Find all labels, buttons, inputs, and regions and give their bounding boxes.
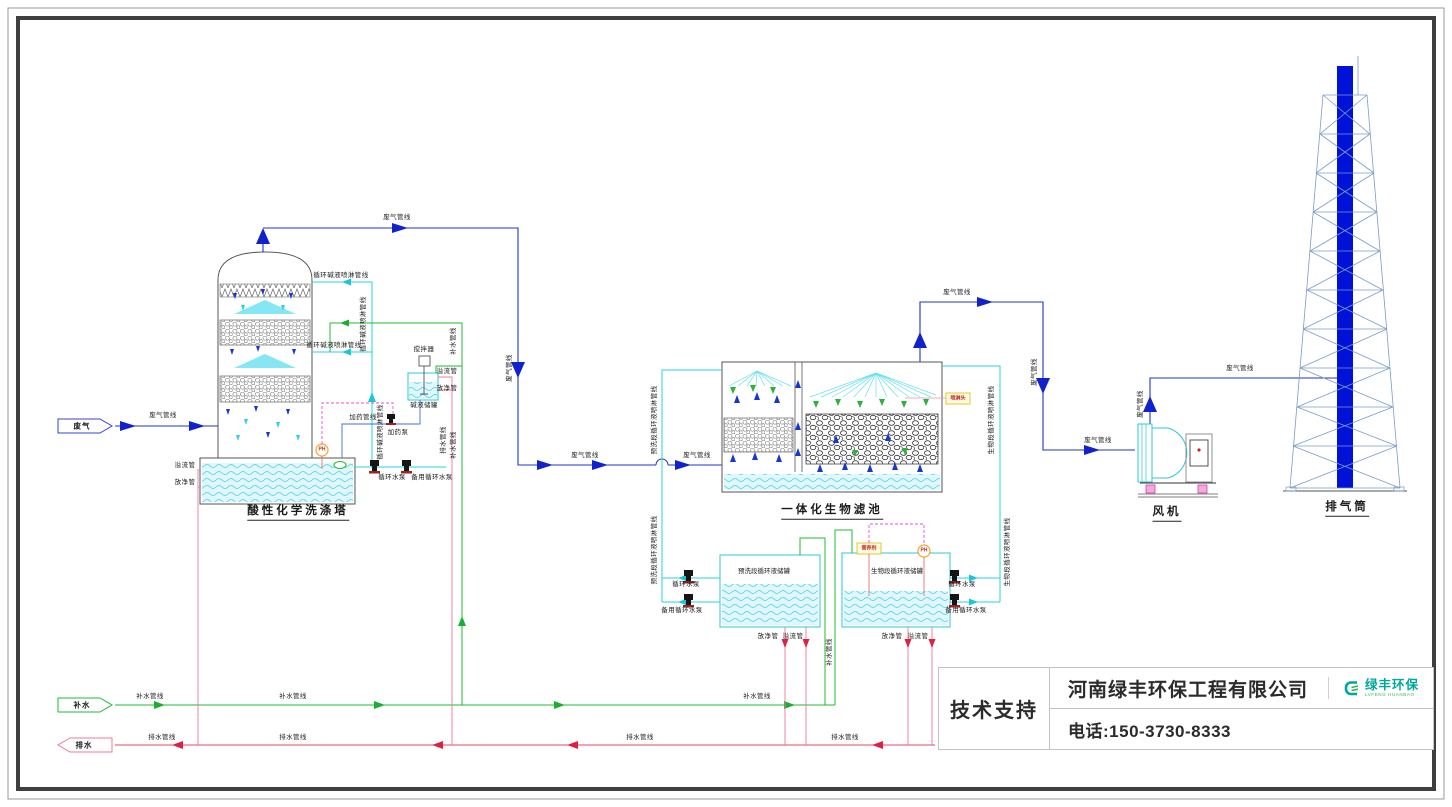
nutrient-tag-box — [857, 543, 881, 554]
sump-water — [202, 463, 353, 502]
biofilter-water — [724, 474, 940, 490]
phone-number: 电话:150-3730-8333 — [1068, 717, 1231, 742]
packing-layer — [220, 376, 310, 402]
signal-line — [869, 524, 924, 545]
ph-meter — [316, 444, 328, 456]
fan — [1138, 424, 1218, 497]
biofilter — [722, 362, 942, 492]
spray-nozzle-tag-box — [946, 393, 970, 404]
packing-layer — [220, 320, 310, 345]
flag-shapes — [58, 419, 112, 752]
company-logo: 绿丰环保 LVFENG HUANBAO — [1343, 679, 1419, 698]
drain-arrows — [782, 639, 936, 648]
level-gauge — [334, 462, 346, 469]
divider — [1328, 677, 1329, 699]
agitator-motor — [419, 356, 430, 366]
company-name: 河南绿丰环保工程有限公司 — [1068, 675, 1308, 702]
logo-subtext: LVFENG HUANBAO — [1365, 693, 1419, 698]
stack-column — [1337, 66, 1353, 488]
support-label: 技术支持 — [950, 694, 1038, 723]
logo-text: 绿丰环保 — [1365, 679, 1419, 692]
signal-line — [322, 403, 393, 444]
exhaust-stack — [1283, 56, 1407, 491]
alkali-tank — [408, 356, 438, 400]
dosing-line — [342, 400, 420, 458]
bio-media-bed — [806, 414, 938, 464]
prewash-packing — [724, 418, 793, 452]
makeup-water-main-line — [115, 701, 835, 709]
logo-icon — [1343, 679, 1362, 698]
ph-meter — [918, 545, 930, 557]
demister-layer — [220, 284, 310, 297]
pfd-canvas: 废气补水排水废气管线废气管线废气管线废气管线废气管线废气管线废气管线废气管线废气… — [0, 0, 1452, 807]
bio-tank — [842, 553, 950, 627]
fan-motor — [1190, 440, 1208, 466]
scrubber-tower — [200, 252, 355, 504]
support-cell: 技术支持 — [939, 668, 1050, 749]
prewash-tank — [720, 555, 820, 627]
title-block: 技术支持 河南绿丰环保工程有限公司 绿丰环保 LVFENG HUANBAO 电话… — [938, 667, 1434, 750]
drain-main-line — [115, 741, 935, 749]
circulation-arrows — [342, 279, 376, 403]
